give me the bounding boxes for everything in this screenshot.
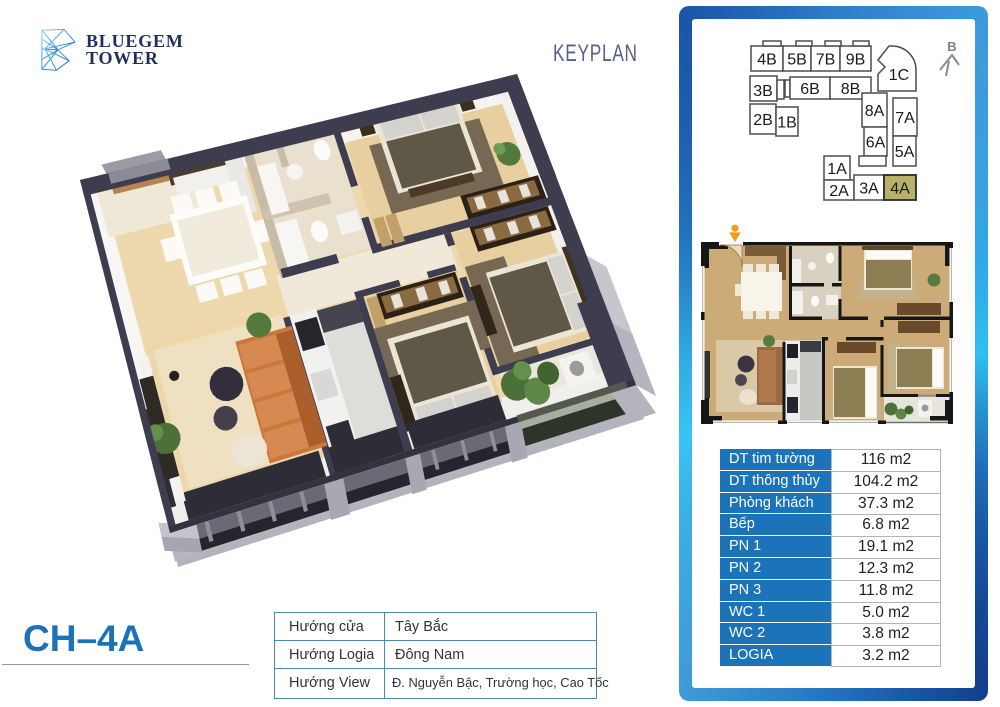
svg-text:4B: 4B xyxy=(757,52,777,69)
svg-text:6A: 6A xyxy=(866,135,886,152)
svg-text:7A: 7A xyxy=(895,110,915,127)
svg-text:B: B xyxy=(947,39,956,54)
svg-text:9B: 9B xyxy=(846,52,866,69)
svg-text:7B: 7B xyxy=(816,52,836,69)
svg-text:3B: 3B xyxy=(753,83,773,100)
svg-text:8A: 8A xyxy=(865,103,885,120)
svg-text:3A: 3A xyxy=(859,181,879,198)
svg-text:2B: 2B xyxy=(753,112,773,129)
svg-text:5B: 5B xyxy=(787,52,807,69)
svg-text:4A: 4A xyxy=(890,181,910,198)
svg-text:1C: 1C xyxy=(889,67,909,84)
svg-text:8B: 8B xyxy=(841,81,861,98)
svg-text:6B: 6B xyxy=(800,81,820,98)
svg-text:1A: 1A xyxy=(827,161,847,178)
svg-text:5A: 5A xyxy=(895,144,915,161)
svg-text:1B: 1B xyxy=(777,115,797,132)
svg-text:2A: 2A xyxy=(829,183,849,200)
